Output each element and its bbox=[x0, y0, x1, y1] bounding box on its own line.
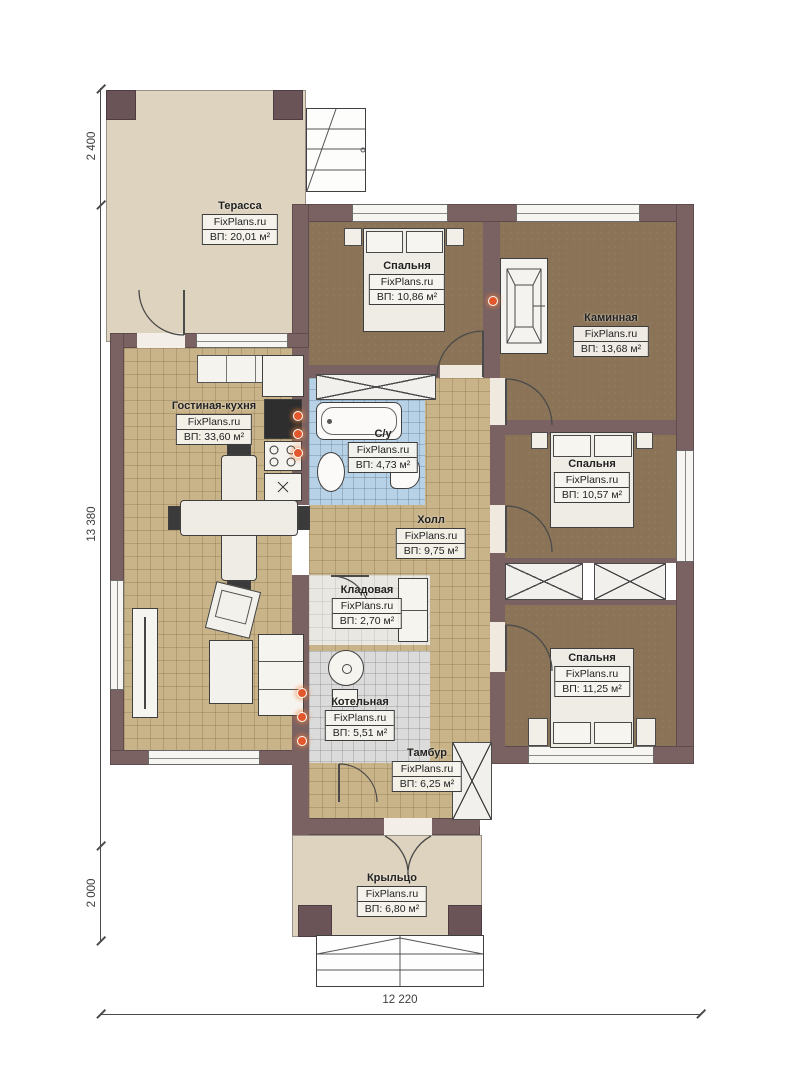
boiler-icon bbox=[328, 650, 364, 686]
door-arc-icon bbox=[505, 378, 553, 426]
sink-icon bbox=[317, 452, 345, 492]
room-label-terrace: Терасса FixPlans.ruВП: 20,01 м² bbox=[202, 200, 278, 245]
radiator-dot-icon bbox=[297, 712, 307, 722]
dim-value-bottom-left: 2 000 bbox=[86, 863, 98, 923]
radiator-dot-icon bbox=[293, 448, 303, 458]
chair-icon bbox=[168, 506, 180, 530]
sofa-icon bbox=[209, 640, 253, 704]
room-label-living-kitchen: Гостиная-кухня FixPlans.ruВП: 33,60 м² bbox=[172, 400, 256, 445]
door-arc-icon bbox=[505, 505, 553, 553]
window-icon bbox=[528, 746, 654, 764]
door-arc-icon bbox=[436, 330, 484, 378]
chair-icon bbox=[298, 506, 310, 530]
door-opening bbox=[490, 622, 505, 672]
nightstand bbox=[636, 718, 656, 746]
terrace-post bbox=[106, 90, 136, 120]
dim-line-bottom bbox=[100, 1014, 701, 1015]
room-label-bedroom1: Спальня FixPlans.ruВП: 10,86 м² bbox=[369, 260, 445, 305]
window-icon bbox=[110, 580, 124, 690]
room-label-bedroom2: Спальня FixPlans.ruВП: 10,57 м² bbox=[554, 458, 630, 503]
door-opening bbox=[490, 378, 505, 425]
nightstand bbox=[446, 228, 464, 246]
porch-post bbox=[448, 905, 482, 937]
wall-left-upper bbox=[292, 204, 309, 348]
window-icon bbox=[676, 450, 694, 562]
wall-hall-right-b bbox=[490, 553, 505, 622]
dim-tick bbox=[96, 841, 106, 851]
room-label-bedroom3: Спальня FixPlans.ruВП: 11,25 м² bbox=[554, 652, 630, 697]
porch-steps bbox=[316, 935, 484, 987]
wardrobe-icon bbox=[505, 563, 583, 600]
storage-shelf bbox=[398, 578, 428, 642]
cabinet-icon bbox=[258, 634, 304, 716]
wardrobe-icon bbox=[594, 563, 666, 600]
pillow bbox=[406, 231, 443, 253]
nightstand bbox=[531, 432, 548, 449]
wall-living-left bbox=[110, 333, 124, 765]
radiator-dot-icon bbox=[293, 411, 303, 421]
wall-hall-right-a bbox=[490, 425, 505, 505]
radiator-dot-icon bbox=[297, 736, 307, 746]
dim-value-bottom: 12 220 bbox=[360, 994, 440, 1006]
room-label-vestibule: Тамбур FixPlans.ruВП: 6,25 м² bbox=[392, 747, 462, 792]
nightstand bbox=[636, 432, 653, 449]
pillow bbox=[594, 435, 632, 457]
pillow bbox=[553, 722, 591, 744]
terrace-post bbox=[273, 90, 303, 120]
radiator-dot-icon bbox=[297, 688, 307, 698]
radiator-dot-icon bbox=[488, 296, 498, 306]
door-opening bbox=[490, 505, 505, 553]
dim-line-left bbox=[100, 88, 101, 942]
dim-tick bbox=[96, 200, 106, 210]
room-label-fireplace-room: Каминная FixPlans.ruВП: 13,68 м² bbox=[573, 312, 649, 357]
window-icon bbox=[516, 204, 640, 222]
room-label-bathroom: С/у FixPlans.ruВП: 4,73 м² bbox=[348, 428, 418, 473]
wardrobe-icon bbox=[316, 374, 436, 400]
porch-post bbox=[298, 905, 332, 937]
window-icon bbox=[196, 333, 288, 348]
wall-hall-right-c bbox=[490, 672, 505, 748]
door-opening bbox=[384, 818, 432, 835]
room-label-storage: Кладовая FixPlans.ruВП: 2,70 м² bbox=[332, 584, 402, 629]
radiator-dot-icon bbox=[293, 429, 303, 439]
pillow bbox=[594, 722, 632, 744]
fireplace-icon bbox=[500, 258, 548, 354]
floor-plan: 2 400 13 380 2 000 12 220 bbox=[0, 0, 792, 1080]
door-arc-icon bbox=[505, 624, 553, 672]
dim-value-top-left: 2 400 bbox=[86, 116, 98, 176]
pillow bbox=[553, 435, 591, 457]
dim-tick bbox=[96, 936, 106, 946]
nightstand bbox=[528, 718, 548, 746]
window-icon bbox=[352, 204, 448, 222]
room-label-boiler-room: Котельная FixPlans.ruВП: 5,51 м² bbox=[325, 696, 395, 741]
dining-table-icon bbox=[180, 500, 298, 536]
wall-left-lower bbox=[292, 750, 309, 835]
stairs-icon bbox=[306, 108, 366, 192]
dim-tick bbox=[96, 84, 106, 94]
nightstand bbox=[344, 228, 362, 246]
tv-stand-icon bbox=[132, 608, 158, 718]
room-label-porch: Крыльцо FixPlans.ruВП: 6,80 м² bbox=[357, 872, 427, 917]
door-arc-icon bbox=[138, 288, 186, 336]
pillow bbox=[366, 231, 403, 253]
window-icon bbox=[148, 750, 260, 765]
kitchen-sink-icon bbox=[264, 473, 302, 501]
room-label-hall: Холл FixPlans.ruВП: 9,75 м² bbox=[396, 514, 466, 559]
dim-value-middle-left: 13 380 bbox=[86, 490, 98, 558]
kitchen-counter-corner bbox=[262, 355, 304, 397]
door-arc-icon bbox=[338, 763, 378, 803]
